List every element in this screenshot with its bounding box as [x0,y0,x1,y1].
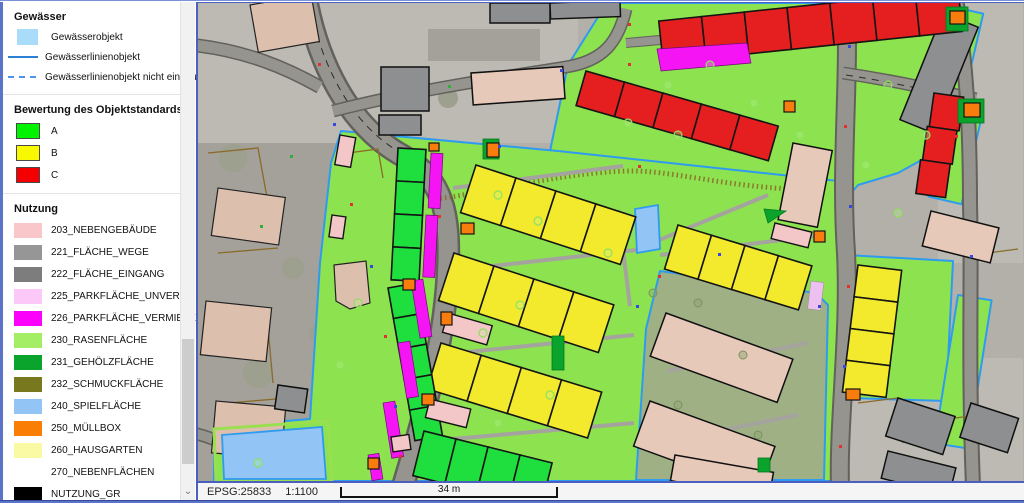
legend-swatch [14,289,42,304]
legend-item-label: NUTZUNG_GR [51,489,120,500]
legend-swatch [14,267,42,282]
legend-item-label: 222_FLÄCHE_EINGANG [51,269,164,280]
legend-item: 203_NEBENGEBÄUDE [14,219,183,241]
muellbox [814,231,825,242]
legend-item-label: A [51,126,58,137]
legend-content: Gewässer Gewässerobjekt Gewässerlinienob… [3,2,183,501]
legend-item: Gewässerobjekt [14,27,183,47]
legend-section-title-bewertung: Bewertung des Objektstandards [14,104,183,116]
map-scale: 1:1100 [285,486,318,498]
legend-swatch [14,443,42,458]
legend-section-title-nutzung: Nutzung [14,203,183,215]
legend-item-label: B [51,148,58,159]
legend-item-label: 240_SPIELFLÄCHE [51,401,141,412]
legend-panel: Gewässer Gewässerobjekt Gewässerlinienob… [0,2,196,501]
legend-item-label: 225_PARKFLÄCHE_UNVERM [51,291,188,302]
legend-item-label: Gewässerlinienobjekt nicht eindeutig [45,72,196,83]
legend-item: 226_PARKFLÄCHE_VERMIETET [14,307,183,329]
legend-separator [3,193,183,194]
status-bar: EPSG:25833 1:1100 34 m [196,483,1024,501]
epsg-code: EPSG:25833 [207,486,271,498]
legend-swatch-a [16,123,40,139]
muellbox [368,458,379,469]
outbuilding-pink [391,434,411,451]
legend-swatch [14,223,42,238]
legend-item: 221_FLÄCHE_WEGE [14,241,183,263]
legend-item-label: 231_GEHÖLZFLÄCHE [51,357,154,368]
legend-swatch-c [16,167,40,183]
muellbox [846,389,860,400]
muellbox [422,394,434,405]
water-line-icon [8,56,38,58]
legend-scrollbar[interactable]: ⌄ [180,2,195,501]
legend-item: 270_NEBENFLÄCHEN [14,461,183,483]
legend-swatch [14,377,42,392]
legend-swatch [14,487,42,502]
legend-swatch [14,421,42,436]
outbuilding-pink [329,215,346,239]
legend-item: 231_GEHÖLZFLÄCHE [14,351,183,373]
legend-item: NUTZUNG_GR [14,483,183,501]
legend-swatch [14,355,42,370]
legend-item: 232_SCHMUCKFLÄCHE [14,373,183,395]
legend-item-label: 270_NEBENFLÄCHEN [51,467,154,478]
muellbox [487,143,499,157]
legend-item: B [14,142,183,164]
muellbox [461,223,474,234]
legend-item: C [14,164,183,186]
legend-separator [3,94,183,95]
scale-bar: 34 m [340,486,558,499]
legend-item: Gewässerlinienobjekt nicht eindeutig [14,67,183,87]
legend-swatch-b [16,145,40,161]
legend-section-title-gewaesser: Gewässer [14,11,183,23]
muellbox [784,101,795,112]
gis-application-window: Gewässer Gewässerobjekt Gewässerlinienob… [0,0,1024,503]
legend-swatch [14,245,42,260]
muellbox [403,279,415,290]
legend-item: A [14,120,183,142]
muellbox [964,103,980,117]
muellbox [950,11,965,24]
water-dashed-line-icon [8,76,38,78]
legend-item: 250_MÜLLBOX [14,417,183,439]
legend-swatch-gewaesserobjekt [17,29,38,45]
legend-swatch [14,311,42,326]
muellbox [429,143,439,151]
legend-item: 240_SPIELFLÄCHE [14,395,183,417]
legend-item-label: C [51,170,58,181]
legend-item-label: Gewässerobjekt [51,32,123,43]
legend-item-label: 260_HAUSGARTEN [51,445,143,456]
legend-item: 222_FLÄCHE_EINGANG [14,263,183,285]
scroll-down-arrow-icon[interactable]: ⌄ [181,485,195,499]
building-column-green [391,148,426,281]
play-area-polygon [222,427,326,479]
scale-bar-label: 34 m [340,484,558,495]
play-area-polygon [635,205,660,253]
scrollbar-thumb[interactable] [182,339,194,464]
legend-item-label: 221_FLÄCHE_WEGE [51,247,149,258]
legend-item: 260_HAUSGARTEN [14,439,183,461]
map-canvas[interactable] [198,3,1023,481]
legend-item-label: 232_SCHMUCKFLÄCHE [51,379,163,390]
legend-item: 230_RASENFLÄCHE [14,329,183,351]
legend-item-label: 250_MÜLLBOX [51,423,121,434]
legend-item-label: 226_PARKFLÄCHE_VERMIETET [51,313,196,324]
legend-item-label: 230_RASENFLÄCHE [51,335,147,346]
parking-strip-magenta [428,153,443,209]
legend-swatch [14,465,42,480]
legend-swatch [14,333,42,348]
legend-item-label: Gewässerlinienobjekt [45,52,140,63]
legend-item: 225_PARKFLÄCHE_UNVERM [14,285,183,307]
legend-item-label: 203_NEBENGEBÄUDE [51,225,157,236]
legend-item: Gewässerlinienobjekt [14,47,183,67]
legend-swatch [14,399,42,414]
map-viewport[interactable] [196,2,1024,483]
muellbox [441,312,452,325]
